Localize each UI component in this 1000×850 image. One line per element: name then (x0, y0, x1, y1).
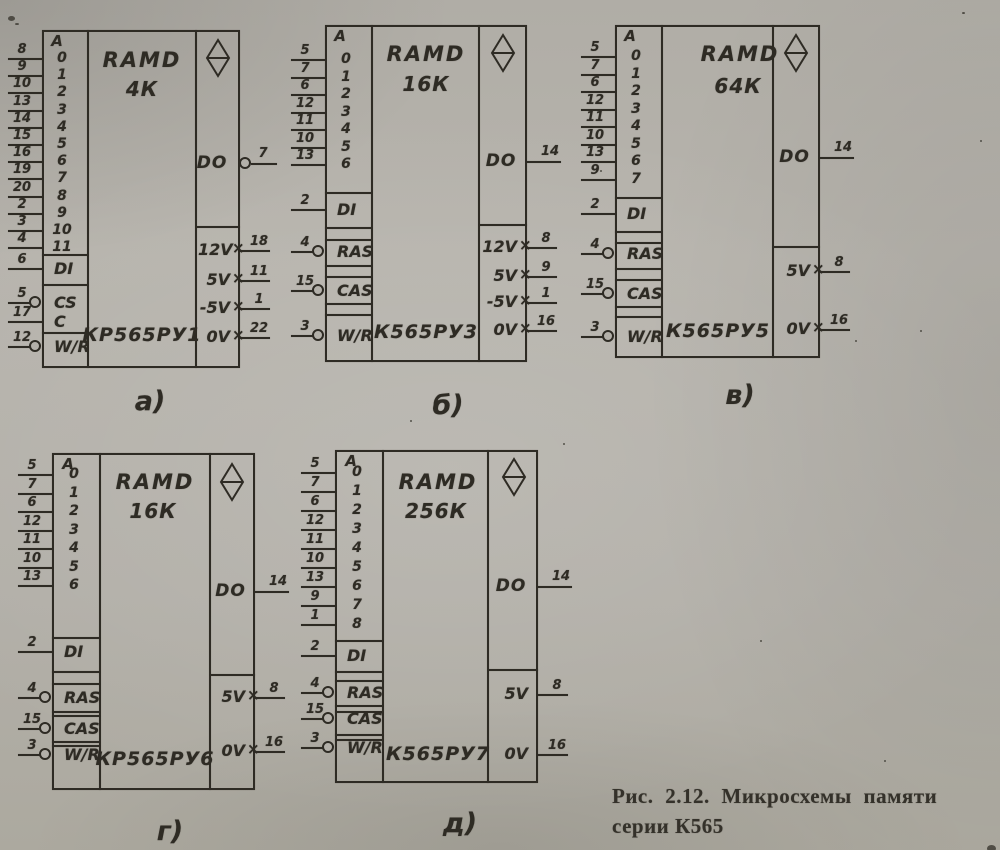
pin-stub (301, 605, 335, 607)
address-bit-label: 1 (335, 70, 357, 84)
signal-label: DO (773, 149, 816, 166)
pin-number: 10 (581, 129, 609, 142)
chip-cell-divider (52, 671, 100, 673)
power-cross-icon: × (232, 299, 245, 314)
signal-label: 0V (775, 321, 810, 337)
pin-number: 14 (830, 141, 856, 154)
signal-label: DO (210, 583, 251, 600)
pin-number: 5 (291, 44, 319, 57)
address-bit-label: 4 (346, 541, 368, 555)
pin-number: 2 (18, 636, 46, 649)
signal-label: DO (488, 578, 534, 595)
figure-caption-line2: серии К565 (612, 814, 972, 839)
scan-speckle (987, 845, 996, 850)
pin-stub (240, 280, 270, 282)
pin-number: 8 (8, 43, 36, 56)
pin-number: 13 (18, 570, 46, 583)
pin-number: 9 (8, 60, 36, 73)
address-header: A (49, 34, 65, 49)
pin-number: 16 (8, 146, 36, 159)
pin-number: 3 (301, 732, 329, 745)
signal-label: W/R (347, 740, 383, 756)
pin-number: 5 (8, 287, 36, 300)
chip-cell-divider (325, 192, 372, 194)
pin-stub (301, 472, 335, 474)
signal-label: DI (337, 202, 356, 218)
chip-cell-divider (615, 279, 662, 281)
pin-number: 11 (18, 533, 46, 546)
address-bit-label: 5 (51, 137, 73, 151)
chip-cell-divider (479, 224, 527, 226)
chip-cell-divider (42, 284, 88, 286)
signal-label: DO (196, 155, 228, 172)
pin-number: 11 (291, 114, 319, 127)
address-bit-label: 7 (625, 172, 647, 186)
pin-number: 3 (291, 320, 319, 333)
address-bit-label: 4 (335, 122, 357, 136)
pin-number: 8 (534, 232, 558, 245)
address-bit-label: 3 (346, 522, 368, 536)
chip-cell-divider (615, 197, 662, 199)
scan-speckle (410, 420, 412, 422)
chip-cell-divider (325, 303, 372, 305)
pin-number: 14 (8, 112, 36, 125)
address-bit-label: 6 (346, 579, 368, 593)
pin-stub (18, 511, 52, 513)
pin-number: 3 (581, 321, 609, 334)
signal-label: -5V (198, 300, 230, 316)
pin-stub (527, 247, 557, 249)
signal-label: 5V (490, 686, 528, 702)
address-bit-label: 8 (346, 617, 368, 631)
bidirectional-diamond-icon (501, 457, 527, 497)
pin-stub (301, 529, 335, 531)
chip-cell-divider (52, 683, 100, 685)
pin-stub (18, 585, 52, 587)
pin-number: 11 (301, 533, 329, 546)
pin-number: 12 (581, 94, 609, 107)
chip-column-divider (661, 25, 663, 358)
pin-stub (301, 510, 335, 512)
bidirectional-diamond-icon (490, 33, 516, 73)
pin-number: 20 (8, 181, 36, 194)
pin-number: 7 (18, 478, 46, 491)
signal-label: -5V (481, 294, 517, 310)
chip-cell-divider (210, 674, 255, 676)
pin-number: 3 (18, 739, 46, 752)
pin-stub (255, 591, 289, 593)
pin-number: 1 (301, 609, 329, 622)
chip-cell-divider (52, 637, 100, 639)
pin-stub (291, 164, 325, 166)
pin-number: 15 (291, 275, 319, 288)
power-cross-icon: × (247, 688, 260, 703)
pin-number: 7 (250, 147, 276, 160)
pin-number: 10 (18, 552, 46, 565)
pin-stub (240, 308, 270, 310)
pin-number: 22 (247, 322, 271, 335)
address-bit-label: 0 (63, 467, 85, 481)
pin-stub (538, 694, 568, 696)
pin-number: 9 (301, 590, 329, 603)
address-header: A (622, 29, 638, 44)
signal-label: 12V (481, 239, 517, 255)
pin-number: 12 (8, 331, 36, 344)
address-bit-label: 5 (346, 560, 368, 574)
pin-number: 14 (548, 570, 574, 583)
pin-number: 15 (581, 278, 609, 291)
chip-cell-divider (196, 226, 240, 228)
bidirectional-diamond-icon (783, 33, 809, 73)
address-bit-label: 3 (63, 523, 85, 537)
chip-cell-divider (52, 715, 100, 717)
pin-stub (301, 567, 335, 569)
address-bit-label: 6 (51, 154, 73, 168)
pin-stub (581, 179, 615, 181)
pin-number: 9 (534, 261, 558, 274)
pin-number: 15 (8, 129, 36, 142)
pin-number: 12 (301, 514, 329, 527)
chip-capacity: 64К (668, 76, 808, 96)
signal-label: RAS (337, 244, 373, 260)
pin-number: 16 (545, 739, 569, 752)
signal-label: W/R (627, 329, 663, 345)
pin-number: 11 (247, 265, 271, 278)
pin-number: 16 (827, 314, 851, 327)
pin-number: 13 (581, 146, 609, 159)
pin-number: 1 (534, 287, 558, 300)
power-cross-icon: × (232, 241, 245, 256)
pin-number: 12 (18, 515, 46, 528)
pin-stub (255, 751, 285, 753)
pin-number: 8 (545, 679, 569, 692)
address-bit-label: 4 (63, 541, 85, 555)
address-bit-label: 1 (63, 486, 85, 500)
pin-number: 5 (301, 457, 329, 470)
pin-number: 14 (537, 145, 563, 158)
chip-cell-divider (773, 246, 820, 248)
pin-stub (538, 586, 572, 588)
signal-label: DI (627, 206, 646, 222)
address-bit-label: 7 (346, 598, 368, 612)
signal-label: DI (54, 261, 73, 277)
pin-number: 6 (301, 495, 329, 508)
address-bit-label: 6 (625, 154, 647, 168)
pin-stub (8, 321, 42, 323)
address-bit-label: 5 (335, 140, 357, 154)
figure-caption: Рис. 2.12. Микросхемы памяти серии К565 (612, 784, 972, 839)
power-cross-icon: × (519, 238, 532, 253)
pin-number: 13 (291, 149, 319, 162)
scan-speckle (760, 640, 762, 642)
signal-label: 0V (212, 743, 245, 759)
pin-stub (301, 548, 335, 550)
address-bit-label: 3 (335, 105, 357, 119)
pin-number: 10 (8, 77, 36, 90)
pin-stub (301, 586, 335, 588)
pin-number: 9 (581, 164, 609, 177)
pin-number: 2 (8, 198, 36, 211)
pin-stub (8, 247, 42, 249)
pin-number: 11 (581, 111, 609, 124)
address-bit-label: 2 (63, 504, 85, 518)
pin-number: 18 (247, 235, 271, 248)
address-bit-label: 5 (63, 560, 85, 574)
pin-number: 4 (8, 232, 36, 245)
address-bit-label: 7 (51, 171, 73, 185)
pin-number: 8 (827, 256, 851, 269)
power-cross-icon: × (812, 320, 825, 335)
pin-stub (240, 250, 270, 252)
chip-title: RAMD (72, 50, 212, 71)
signal-label: RAS (347, 685, 383, 701)
pin-number: 7 (301, 476, 329, 489)
address-bit-label: 2 (346, 503, 368, 517)
address-bit-label: 1 (346, 484, 368, 498)
scan-speckle (563, 443, 565, 445)
pin-number: 7 (291, 62, 319, 75)
chip-cell-divider (615, 231, 662, 233)
pin-stub (527, 330, 557, 332)
chip-cell-divider (325, 239, 372, 241)
address-bit-label: 2 (625, 84, 647, 98)
pin-number: 4 (301, 677, 329, 690)
address-bit-label: 6 (63, 578, 85, 592)
chip-cell-divider (52, 711, 100, 713)
address-bit-label: 3 (51, 103, 73, 117)
signal-label: CAS (337, 283, 373, 299)
address-bit-label: 9 (51, 206, 73, 220)
power-cross-icon: × (519, 267, 532, 282)
chip-cell-divider (335, 640, 383, 642)
pin-number: 8 (262, 682, 286, 695)
pin-number: 6 (8, 253, 36, 266)
pin-number: 6 (291, 79, 319, 92)
pin-stub (820, 157, 854, 159)
pin-number: 3 (8, 215, 36, 228)
pin-number: 5 (581, 41, 609, 54)
power-cross-icon: × (247, 742, 260, 757)
address-bit-label: 1 (51, 68, 73, 82)
pin-stub (240, 337, 270, 339)
pin-number: 4 (581, 238, 609, 251)
pin-stub (538, 754, 568, 756)
chip-cell-divider (335, 734, 383, 736)
signal-label: CAS (64, 721, 100, 737)
chip-cell-divider (615, 268, 662, 270)
signal-label: W/R (54, 339, 90, 355)
signal-label: CS (54, 295, 77, 311)
pin-stub (581, 213, 615, 215)
chip-column-divider (772, 25, 774, 358)
bidirectional-diamond-icon (205, 38, 231, 78)
signal-label: 12V (198, 242, 230, 258)
pin-number: 19 (8, 163, 36, 176)
pin-number: 16 (262, 736, 286, 749)
address-bit-label: 1 (625, 67, 647, 81)
chip-cell-divider (325, 227, 372, 229)
address-bit-label: 0 (625, 49, 647, 63)
address-bit-label: 0 (335, 52, 357, 66)
address-bit-label: 4 (51, 120, 73, 134)
pin-number: 2 (581, 198, 609, 211)
scan-speckle (962, 12, 965, 14)
pin-number: 4 (291, 236, 319, 249)
pin-number: 10 (301, 552, 329, 565)
pin-stub (527, 302, 557, 304)
signal-label: 5V (198, 272, 230, 288)
pin-number: 2 (291, 194, 319, 207)
pin-stub (251, 163, 277, 165)
pin-number: 2 (301, 640, 329, 653)
scan-speckle (855, 340, 857, 342)
pin-stub (18, 474, 52, 476)
chip-title: RAMD (356, 44, 496, 65)
chip-column-divider (487, 450, 489, 783)
pin-stub (291, 209, 325, 211)
pin-stub (820, 329, 850, 331)
address-bit-label: 10 (51, 223, 73, 237)
address-bit-label: 5 (625, 137, 647, 151)
pin-number: 13 (301, 571, 329, 584)
scan-speckle (884, 760, 886, 762)
chip-letter-label: д) (435, 810, 485, 837)
address-bit-label: 0 (51, 51, 73, 65)
chip-capacity: 256К (366, 501, 506, 521)
pin-number: 5 (18, 459, 46, 472)
figure-caption-line1: Рис. 2.12. Микросхемы памяти (612, 784, 972, 809)
power-cross-icon: × (232, 271, 245, 286)
chip-cell-divider (615, 306, 662, 308)
signal-label: DO (479, 153, 523, 170)
bidirectional-diamond-icon (219, 462, 245, 502)
pin-number: 1 (247, 293, 271, 306)
signal-label: DI (347, 648, 366, 664)
address-bit-label: 6 (335, 157, 357, 171)
signal-label: RAS (64, 690, 100, 706)
pin-number: 6 (581, 76, 609, 89)
address-bit-label: 3 (625, 102, 647, 116)
power-cross-icon: × (519, 293, 532, 308)
pin-number: 4 (18, 682, 46, 695)
chip-cell-divider (325, 265, 372, 267)
chip-cell-divider (335, 680, 383, 682)
signal-label: 0V (490, 746, 528, 762)
pin-stub (527, 276, 557, 278)
power-cross-icon: × (519, 321, 532, 336)
power-cross-icon: × (812, 262, 825, 277)
scan-speckle (980, 140, 982, 142)
pin-stub (820, 271, 850, 273)
scan-speckle (920, 330, 922, 332)
pin-number: 16 (534, 315, 558, 328)
address-header: A (332, 29, 348, 44)
chip-cell-divider (325, 314, 372, 316)
signal-label: 5V (775, 263, 810, 279)
pin-number: 13 (8, 95, 36, 108)
scan-speckle (600, 170, 602, 172)
pin-stub (301, 655, 335, 657)
address-bit-label: 0 (346, 465, 368, 479)
chip-letter-label: в) (715, 382, 765, 409)
chip-capacity: 16К (356, 74, 496, 94)
signal-label: CAS (627, 286, 663, 302)
signal-label: DI (64, 644, 83, 660)
scan-speckle (8, 16, 15, 21)
signal-label: 0V (481, 322, 517, 338)
address-bit-label: 11 (51, 240, 73, 254)
chip-title: RAMD (368, 472, 508, 493)
pin-number: 7 (581, 59, 609, 72)
chip-letter-label: г) (145, 818, 195, 845)
scanned-textbook-page: RAMD4ККР565РУ1а)A80911021331441551661972… (0, 0, 1000, 850)
pin-number: 17 (8, 306, 36, 319)
chip-capacity: 4К (72, 79, 212, 99)
address-bit-label: 2 (335, 87, 357, 101)
chip-cell-divider (325, 276, 372, 278)
scan-speckle (15, 23, 19, 25)
address-bit-label: 2 (51, 85, 73, 99)
signal-label: W/R (337, 328, 373, 344)
chip-letter-label: а) (125, 388, 175, 415)
pin-stub (8, 268, 42, 270)
address-bit-label: 4 (625, 119, 647, 133)
signal-label: W/R (64, 747, 100, 763)
signal-label: RAS (627, 246, 663, 262)
chip-cell-divider (488, 669, 538, 671)
signal-label: C (54, 314, 66, 330)
pin-stub (255, 697, 285, 699)
pin-number: 12 (291, 97, 319, 110)
pin-number: 15 (301, 703, 329, 716)
pin-stub (301, 491, 335, 493)
pin-number: 15 (18, 713, 46, 726)
pin-number: 10 (291, 132, 319, 145)
signal-label: 5V (212, 689, 245, 705)
pin-stub (527, 161, 561, 163)
chip-letter-label: б) (423, 392, 473, 419)
pin-number: 14 (265, 575, 291, 588)
pin-stub (18, 548, 52, 550)
address-bit-label: 8 (51, 189, 73, 203)
signal-label: 5V (481, 268, 517, 284)
chip-cell-divider (335, 705, 383, 707)
signal-label: 0V (198, 329, 230, 345)
chip-capacity: 16К (83, 501, 223, 521)
chip-title: RAMD (85, 472, 225, 493)
signal-label: CAS (347, 711, 383, 727)
chip-cell-divider (52, 741, 100, 743)
power-cross-icon: × (232, 328, 245, 343)
pin-stub (18, 651, 52, 653)
pin-number: 6 (18, 496, 46, 509)
chip-cell-divider (335, 671, 383, 673)
chip-cell-divider (615, 316, 662, 318)
pin-stub (301, 624, 335, 626)
